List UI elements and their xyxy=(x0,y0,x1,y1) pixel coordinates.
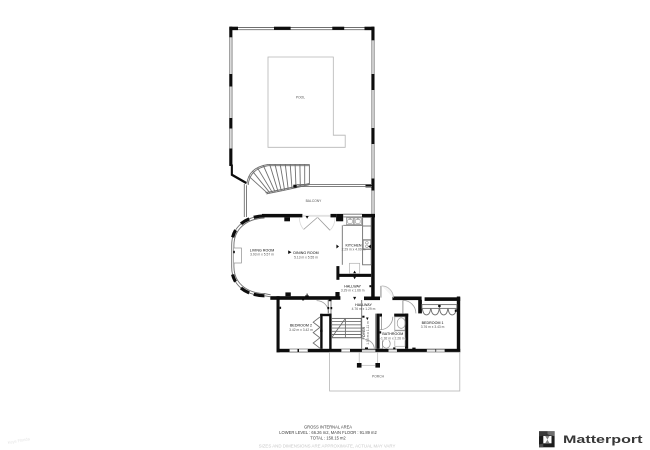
svg-text:3.76 m x 3.43 m: 3.76 m x 3.43 m xyxy=(421,325,445,329)
svg-text:3.29 m x 1.66 m: 3.29 m x 1.66 m xyxy=(341,288,365,292)
svg-text:3.93 m x 5.57 m: 3.93 m x 5.57 m xyxy=(250,253,274,257)
svg-text:5.13 m x 5.55 m: 5.13 m x 5.55 m xyxy=(294,255,318,259)
svg-text:Matterport: Matterport xyxy=(563,434,643,446)
svg-text:BALCONY: BALCONY xyxy=(306,199,323,203)
svg-text:TOTAL : 158.15 m2: TOTAL : 158.15 m2 xyxy=(310,435,346,440)
svg-text:4.76 m x 1.29 m: 4.76 m x 1.29 m xyxy=(352,307,376,311)
svg-text:BEDROOM 1: BEDROOM 1 xyxy=(422,321,444,325)
svg-text:2.29 m x 4.09 m: 2.29 m x 4.09 m xyxy=(342,247,366,251)
svg-text:BEDROOM 2: BEDROOM 2 xyxy=(290,324,312,328)
svg-text:PORCH: PORCH xyxy=(372,375,385,379)
svg-text:3.42 m x 3.42 m: 3.42 m x 3.42 m xyxy=(289,328,313,332)
svg-text:LOWER LEVEL : 66.26 m2, MAIN F: LOWER LEVEL : 66.26 m2, MAIN FLOOR : 91.… xyxy=(279,430,377,435)
svg-text:GROSS INTERNAL AREA: GROSS INTERNAL AREA xyxy=(304,425,352,430)
svg-text:1.92 m x 2.26 m: 1.92 m x 2.26 m xyxy=(381,336,405,340)
svg-text:SIZES AND DIMENSIONS ARE APPRO: SIZES AND DIMENSIONS ARE APPROXIMATE, AC… xyxy=(259,443,396,448)
svg-text:POOL: POOL xyxy=(296,96,305,100)
